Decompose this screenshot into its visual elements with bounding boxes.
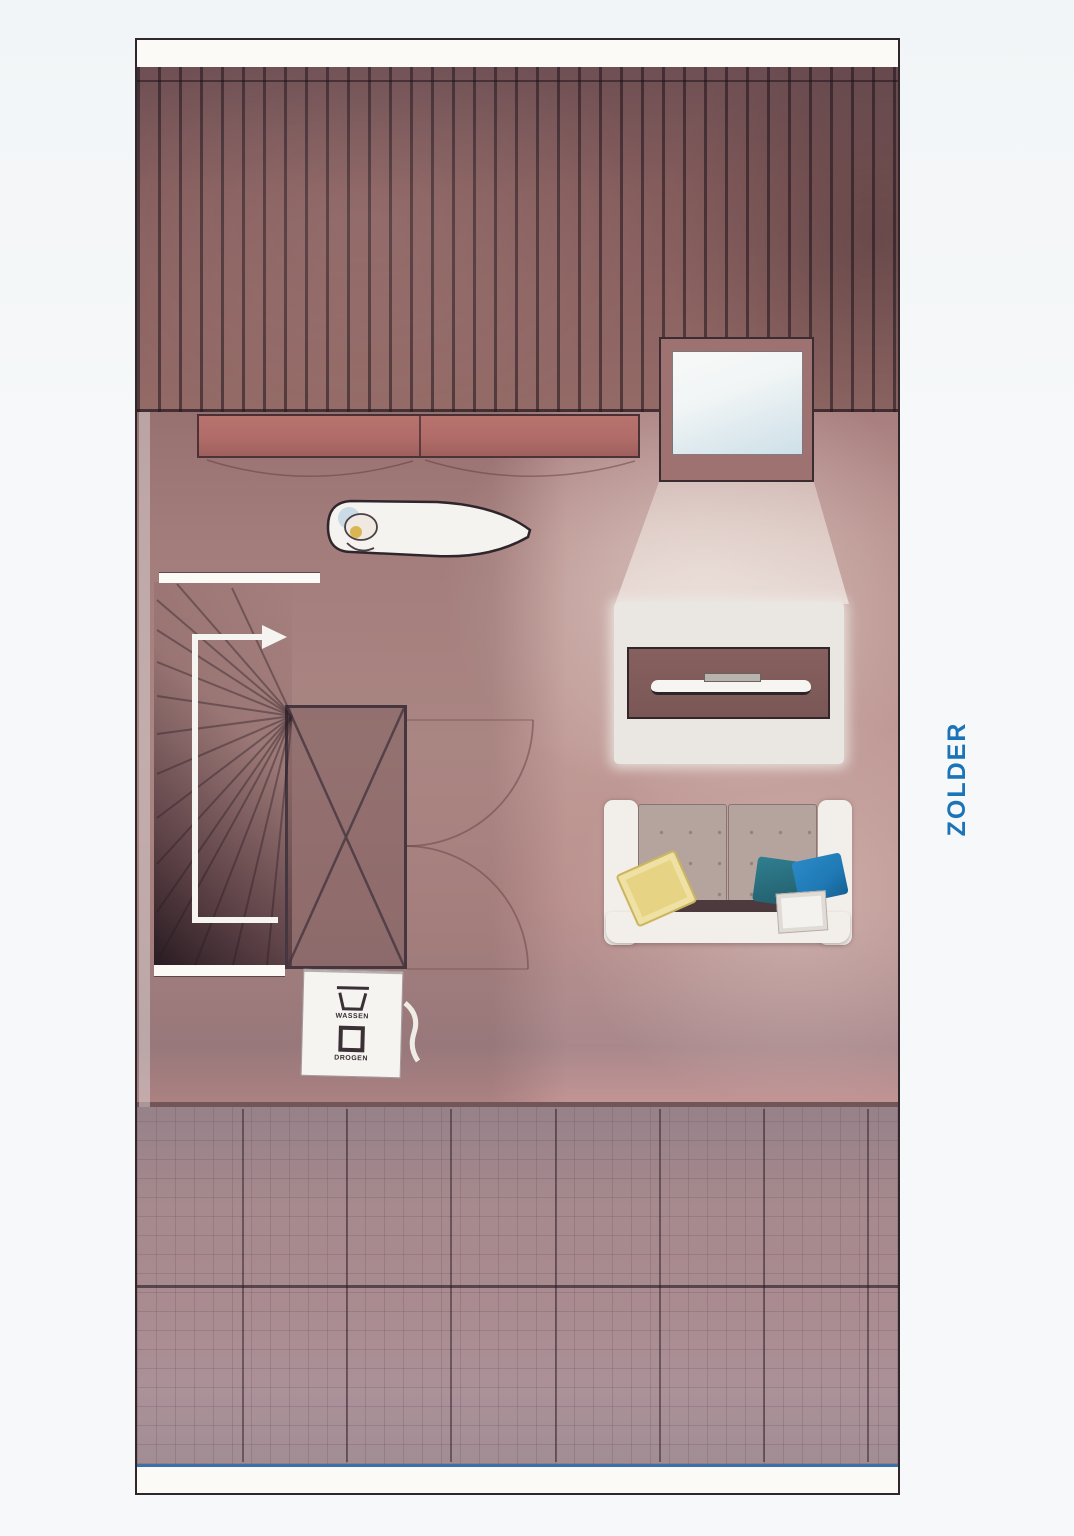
skylight-window (659, 337, 814, 482)
tv-rug (614, 602, 844, 764)
bottom-wall (137, 1467, 898, 1493)
room-label: ZOLDER (942, 719, 972, 839)
dry-label: DROGEN (334, 1055, 368, 1063)
washing-tub-icon (333, 985, 372, 1012)
sofa-magazine (776, 890, 829, 933)
stair-wall-bottom (154, 965, 285, 976)
skylight-glass (672, 351, 803, 455)
left-wall (139, 412, 150, 1107)
tv-soundbar (704, 673, 761, 682)
washer-dryer-station: WASSEN DROGEN (301, 969, 404, 1079)
cabinet-divider (419, 416, 421, 456)
tv-cabinet (627, 647, 830, 719)
stairwell (154, 582, 292, 967)
scanned-floorplan-page: { "page": { "room_label": "ZOLDER" }, "p… (0, 0, 1074, 1536)
wash-label: WASSEN (335, 1013, 369, 1021)
storage-cabinet (197, 414, 640, 458)
drying-square-icon (337, 1025, 366, 1054)
sofa (604, 800, 852, 945)
tv-screen (651, 680, 811, 695)
closet-void (285, 705, 407, 969)
ridge-wall (137, 40, 898, 68)
floor-plan: WASSEN DROGEN (135, 38, 900, 1495)
stair-wall-top (159, 573, 320, 583)
tile-seam-horizontal (137, 1285, 898, 1288)
roof-batten-line (137, 80, 898, 82)
